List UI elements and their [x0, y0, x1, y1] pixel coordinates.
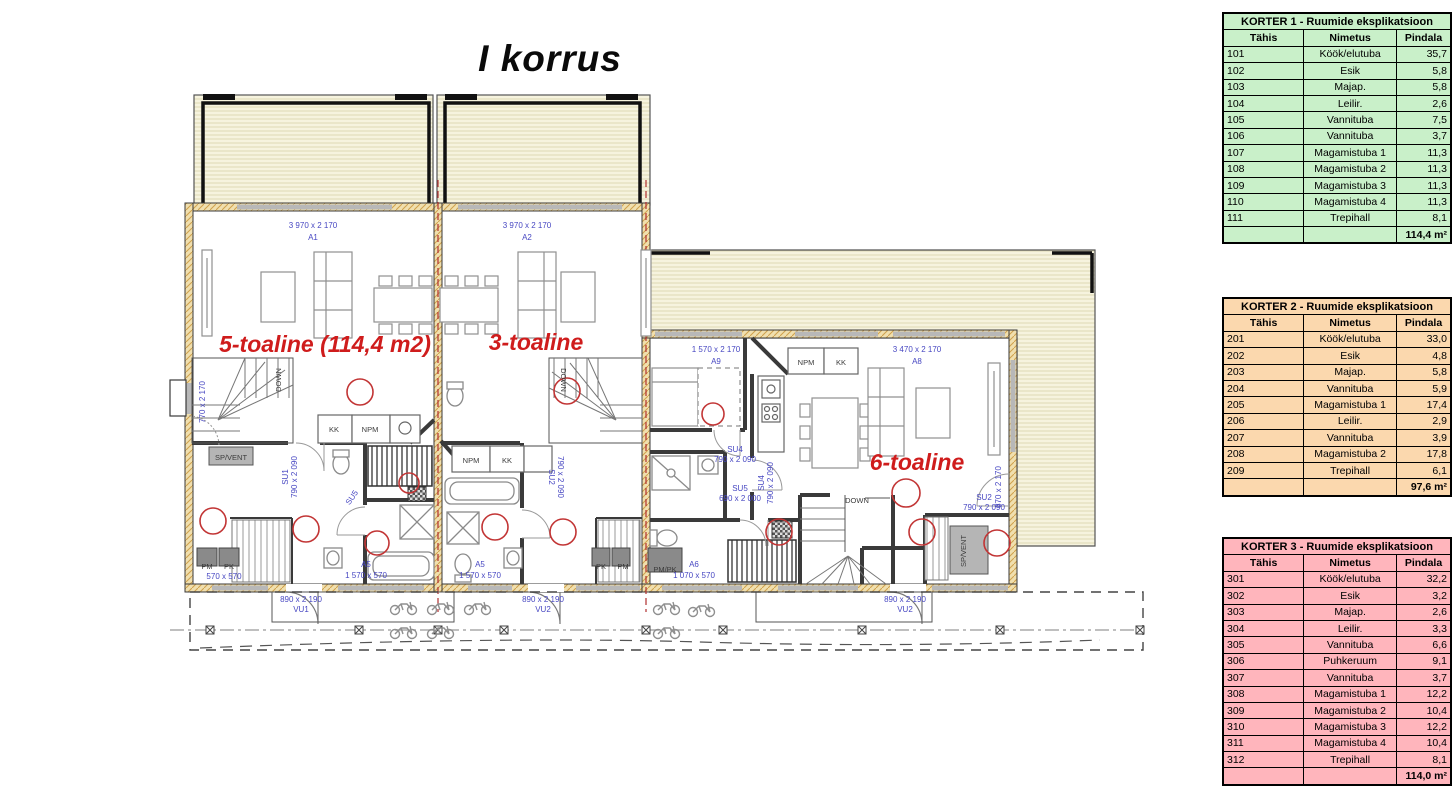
plan-label: SU5	[732, 484, 748, 493]
table-cell: 8,1	[1397, 752, 1451, 768]
korter-1-table: KORTER 1 - Ruumide eksplikatsioonTähisNi…	[1222, 12, 1452, 244]
table-cell: Nimetus	[1304, 555, 1397, 571]
plan-label: PK	[224, 562, 234, 571]
plan-label: SU2	[547, 469, 556, 485]
floor-plan-svg: 3 970 x 2 170A13 970 x 2 170A21 570 x 2 …	[0, 0, 1210, 800]
table-row: KORTER 3 - Ruumide eksplikatsioon	[1223, 538, 1451, 555]
plan-label: 790 x 2 090	[714, 455, 756, 464]
table-cell: 10,4	[1397, 735, 1451, 751]
table-row: 108Magamistuba 211,3	[1223, 161, 1451, 177]
table-cell: Leilir.	[1304, 95, 1397, 111]
table-cell: 114,0 m²	[1397, 768, 1451, 785]
plan-label: 1 070 x 570	[673, 571, 715, 580]
table-cell: 3,7	[1397, 670, 1451, 686]
table-cell: 202	[1223, 348, 1304, 364]
table-cell: 5,8	[1397, 364, 1451, 380]
plan-label: VU2	[535, 605, 551, 614]
table-cell: Vannituba	[1304, 637, 1397, 653]
table-cell: 303	[1223, 604, 1304, 620]
table-row: 206Leilir.2,9	[1223, 413, 1451, 429]
table-cell: Esik	[1304, 588, 1397, 604]
korter-2-table: KORTER 2 - Ruumide eksplikatsioonTähisNi…	[1222, 297, 1452, 497]
table-cell: Köök/elutuba	[1304, 46, 1397, 62]
table-cell: 310	[1223, 719, 1304, 735]
table-cell: 12,2	[1397, 719, 1451, 735]
table-cell: Esik	[1304, 63, 1397, 79]
plan-label: SP/VENT	[215, 453, 248, 462]
plan-label: DOWN	[559, 368, 568, 392]
plan-label: SU2	[976, 493, 992, 502]
table-row: 306Puhkeruum9,1	[1223, 653, 1451, 669]
table-row: 106Vannituba3,7	[1223, 128, 1451, 144]
table-row: KORTER 2 - Ruumide eksplikatsioon	[1223, 298, 1451, 315]
table-row: 311Magamistuba 410,4	[1223, 735, 1451, 751]
table-cell	[1304, 479, 1397, 496]
plan-label: 890 x 2 190	[280, 595, 322, 604]
table-cell: 206	[1223, 413, 1304, 429]
plan-label: KK	[329, 425, 339, 434]
table-cell: 108	[1223, 161, 1304, 177]
table-cell	[1223, 479, 1304, 496]
table-row: 307Vannituba3,7	[1223, 670, 1451, 686]
table-cell: 5,9	[1397, 380, 1451, 396]
table-row: TähisNimetusPindala	[1223, 315, 1451, 331]
table-cell: 201	[1223, 331, 1304, 347]
table-cell: 107	[1223, 145, 1304, 161]
plan-label: 1 570 x 2 170	[692, 345, 741, 354]
table-cell: Pindala	[1397, 30, 1451, 46]
table-cell: Tähis	[1223, 30, 1304, 46]
sauna-apartment-1	[368, 446, 432, 501]
table-cell	[1223, 227, 1304, 244]
table-cell: 312	[1223, 752, 1304, 768]
plan-label: 3 470 x 2 170	[893, 345, 942, 354]
table-cell: 114,4 m²	[1397, 227, 1451, 244]
table-row: 304Leilir.3,3	[1223, 620, 1451, 636]
table-cell: 32,2	[1397, 571, 1451, 587]
plan-label: SU1	[281, 469, 290, 485]
table-cell: Vannituba	[1304, 430, 1397, 446]
table-row: 203Majap.5,8	[1223, 364, 1451, 380]
plan-label: PK	[596, 562, 606, 571]
table-cell: Trepihall	[1304, 462, 1397, 478]
table-row: 202Esik4,8	[1223, 348, 1451, 364]
table-cell: 104	[1223, 95, 1304, 111]
table-cell: KORTER 2 - Ruumide eksplikatsioon	[1223, 298, 1451, 315]
table-cell: Vannituba	[1304, 670, 1397, 686]
table-cell: 6,6	[1397, 637, 1451, 653]
table-cell: Magamistuba 1	[1304, 397, 1397, 413]
table-cell: 8,1	[1397, 210, 1451, 226]
plan-label: 1 570 x 570	[345, 571, 387, 580]
plan-label: NPM	[463, 456, 480, 465]
plan-label: 570 x 570	[206, 572, 242, 581]
plan-label: 890 x 2 190	[884, 595, 926, 604]
table-cell: 301	[1223, 571, 1304, 587]
table-cell: 3,3	[1397, 620, 1451, 636]
table-cell: 12,2	[1397, 686, 1451, 702]
table-cell: Magamistuba 2	[1304, 446, 1397, 462]
bicycle-parking	[391, 602, 715, 639]
plan-label: SU4	[757, 475, 766, 491]
table-cell: 307	[1223, 670, 1304, 686]
table-cell: Tähis	[1223, 315, 1304, 331]
table-cell	[1223, 768, 1304, 785]
table-row: 105Vannituba7,5	[1223, 112, 1451, 128]
table-cell: 304	[1223, 620, 1304, 636]
table-row: 303Majap.2,6	[1223, 604, 1451, 620]
red-circle-marker	[482, 514, 508, 540]
table-row: 110Magamistuba 411,3	[1223, 194, 1451, 210]
table-cell: 2,6	[1397, 95, 1451, 111]
table-row: 111Trepihall8,1	[1223, 210, 1451, 226]
table-cell: Magamistuba 1	[1304, 686, 1397, 702]
table-row: 302Esik3,2	[1223, 588, 1451, 604]
table-cell: Trepihall	[1304, 210, 1397, 226]
table-row: 103Majap.5,8	[1223, 79, 1451, 95]
plan-label: 3 970 x 2 170	[289, 221, 338, 230]
table-row: 310Magamistuba 312,2	[1223, 719, 1451, 735]
stairs-apartment-3	[800, 495, 890, 584]
table-cell: Leilir.	[1304, 620, 1397, 636]
table-cell: 5,8	[1397, 79, 1451, 95]
table-cell: 2,6	[1397, 604, 1451, 620]
table-cell: Trepihall	[1304, 752, 1397, 768]
plan-label: PM	[201, 562, 212, 571]
red-circle-marker	[347, 379, 373, 405]
table-row: 109Magamistuba 311,3	[1223, 177, 1451, 193]
plan-label: 790 x 2 090	[766, 462, 775, 504]
table-cell: KORTER 1 - Ruumide eksplikatsioon	[1223, 13, 1451, 30]
plan-label: 870 x 2 170	[994, 466, 1003, 508]
table-cell: 204	[1223, 380, 1304, 396]
table-cell: Leilir.	[1304, 413, 1397, 429]
plan-label: NPM	[362, 425, 379, 434]
table-row: 207Vannituba3,9	[1223, 430, 1451, 446]
plan-label: A2	[522, 233, 532, 242]
table-cell: 305	[1223, 637, 1304, 653]
table-row: KORTER 1 - Ruumide eksplikatsioon	[1223, 13, 1451, 30]
table-cell: 103	[1223, 79, 1304, 95]
table-cell: 302	[1223, 588, 1304, 604]
plan-label: 790 x 2 090	[556, 456, 565, 498]
floor-plan-sheet: I korrus	[0, 0, 1456, 800]
table-cell: 11,3	[1397, 177, 1451, 193]
plan-label: 690 x 2 000	[719, 494, 761, 503]
korter-3-table: KORTER 3 - Ruumide eksplikatsioonTähisNi…	[1222, 537, 1452, 786]
table-cell: Nimetus	[1304, 30, 1397, 46]
table-cell: 5,8	[1397, 63, 1451, 79]
table-cell: 2,9	[1397, 413, 1451, 429]
table-cell: 11,3	[1397, 194, 1451, 210]
left-bay-window	[170, 380, 186, 416]
table-row: 309Magamistuba 210,4	[1223, 702, 1451, 718]
red-circle-marker	[200, 508, 226, 534]
table-row: 104Leilir.2,6	[1223, 95, 1451, 111]
plan-label: VU1	[293, 605, 309, 614]
plan-label: VU2	[897, 605, 913, 614]
table-cell: 105	[1223, 112, 1304, 128]
terrace-top-right	[437, 95, 650, 205]
table-cell: 10,4	[1397, 702, 1451, 718]
table-cell: 109	[1223, 177, 1304, 193]
plan-label: 890 x 2 190	[522, 595, 564, 604]
table-cell: Magamistuba 3	[1304, 177, 1397, 193]
table-cell: 209	[1223, 462, 1304, 478]
table-row: 301Köök/elutuba32,2	[1223, 571, 1451, 587]
table-cell: Nimetus	[1304, 315, 1397, 331]
table-row: 201Köök/elutuba33,0	[1223, 331, 1451, 347]
table-cell: 110	[1223, 194, 1304, 210]
plan-label: DOWN	[845, 496, 869, 505]
table-cell: 106	[1223, 128, 1304, 144]
table-cell: 3,2	[1397, 588, 1451, 604]
plan-label: 3 970 x 2 170	[503, 221, 552, 230]
table-row: TähisNimetusPindala	[1223, 555, 1451, 571]
table-cell: Magamistuba 2	[1304, 702, 1397, 718]
table-row: 308Magamistuba 112,2	[1223, 686, 1451, 702]
table-cell: 3,9	[1397, 430, 1451, 446]
table-cell: Magamistuba 4	[1304, 735, 1397, 751]
plan-label: A5	[361, 560, 371, 569]
table-cell: Puhkeruum	[1304, 653, 1397, 669]
plan-label: A5	[475, 560, 485, 569]
table-cell: Pindala	[1397, 315, 1451, 331]
plan-label: A8	[912, 357, 922, 366]
table-cell: 101	[1223, 46, 1304, 62]
table-cell: Magamistuba 1	[1304, 145, 1397, 161]
plan-label: 790 x 2 090	[290, 456, 299, 498]
red-circle-marker	[550, 519, 576, 545]
table-cell: Esik	[1304, 348, 1397, 364]
table-cell: 17,8	[1397, 446, 1451, 462]
table-row: 114,4 m²	[1223, 227, 1451, 244]
table-cell: 17,4	[1397, 397, 1451, 413]
table-cell: Vannituba	[1304, 128, 1397, 144]
table-cell	[1304, 768, 1397, 785]
plan-label: SU4	[727, 445, 743, 454]
plan-label: KK	[502, 456, 512, 465]
table-cell: Tähis	[1223, 555, 1304, 571]
red-circle-marker	[892, 479, 920, 507]
table-row: 107Magamistuba 111,3	[1223, 145, 1451, 161]
plan-label: A1	[308, 233, 318, 242]
plan-label: 1 570 x 570	[459, 571, 501, 580]
table-row: TähisNimetusPindala	[1223, 30, 1451, 46]
table-cell: 4,8	[1397, 348, 1451, 364]
table-cell: Magamistuba 3	[1304, 719, 1397, 735]
apartment-label: 6-toaline	[870, 449, 965, 475]
table-cell: 308	[1223, 686, 1304, 702]
table-cell: 203	[1223, 364, 1304, 380]
red-circle-marker	[293, 516, 319, 542]
table-cell: Majap.	[1304, 604, 1397, 620]
table-row: 101Köök/elutuba35,7	[1223, 46, 1451, 62]
plan-label: 770 x 2 170	[198, 381, 207, 423]
plan-label: SP/VENT	[959, 535, 968, 568]
table-cell: 208	[1223, 446, 1304, 462]
table-row: 204Vannituba5,9	[1223, 380, 1451, 396]
table-cell: 3,7	[1397, 128, 1451, 144]
plan-label: A6	[689, 560, 699, 569]
table-cell: Magamistuba 2	[1304, 161, 1397, 177]
table-cell: Magamistuba 4	[1304, 194, 1397, 210]
table-cell: 309	[1223, 702, 1304, 718]
table-row: 312Trepihall8,1	[1223, 752, 1451, 768]
table-cell: 306	[1223, 653, 1304, 669]
table-cell: 6,1	[1397, 462, 1451, 478]
table-cell: 11,3	[1397, 145, 1451, 161]
table-cell: 102	[1223, 63, 1304, 79]
table-row: 209Trepihall6,1	[1223, 462, 1451, 478]
plan-label: NPM	[798, 358, 815, 367]
table-cell: 207	[1223, 430, 1304, 446]
table-cell: Pindala	[1397, 555, 1451, 571]
table-cell: 111	[1223, 210, 1304, 226]
apartment-label: 5-toaline (114,4 m2)	[219, 331, 431, 357]
terrace-top-left	[194, 95, 433, 205]
table-cell: 33,0	[1397, 331, 1451, 347]
table-cell	[1304, 227, 1397, 244]
table-cell: 97,6 m²	[1397, 479, 1451, 496]
table-cell: Vannituba	[1304, 380, 1397, 396]
table-cell: 7,5	[1397, 112, 1451, 128]
table-cell: 205	[1223, 397, 1304, 413]
table-cell: Vannituba	[1304, 112, 1397, 128]
table-cell: Köök/elutuba	[1304, 331, 1397, 347]
plan-label: KK	[836, 358, 846, 367]
plan-label: A9	[711, 357, 721, 366]
plan-label: DOWN	[274, 368, 283, 392]
table-row: 205Magamistuba 117,4	[1223, 397, 1451, 413]
sauna-apartment-3	[728, 521, 796, 582]
plan-label: SU5	[344, 488, 361, 506]
table-cell: KORTER 3 - Ruumide eksplikatsioon	[1223, 538, 1451, 555]
table-cell: 11,3	[1397, 161, 1451, 177]
table-row: 97,6 m²	[1223, 479, 1451, 496]
table-cell: 311	[1223, 735, 1304, 751]
plan-label: PM/PK	[653, 565, 676, 574]
plan-label: PM	[617, 562, 628, 571]
table-cell: Köök/elutuba	[1304, 571, 1397, 587]
table-cell: Majap.	[1304, 364, 1397, 380]
table-cell: Majap.	[1304, 79, 1397, 95]
table-row: 102Esik5,8	[1223, 63, 1451, 79]
apartment-label: 3-toaline	[489, 329, 584, 355]
table-row: 114,0 m²	[1223, 768, 1451, 785]
table-row: 305Vannituba6,6	[1223, 637, 1451, 653]
table-cell: 9,1	[1397, 653, 1451, 669]
table-row: 208Magamistuba 217,8	[1223, 446, 1451, 462]
table-cell: 35,7	[1397, 46, 1451, 62]
